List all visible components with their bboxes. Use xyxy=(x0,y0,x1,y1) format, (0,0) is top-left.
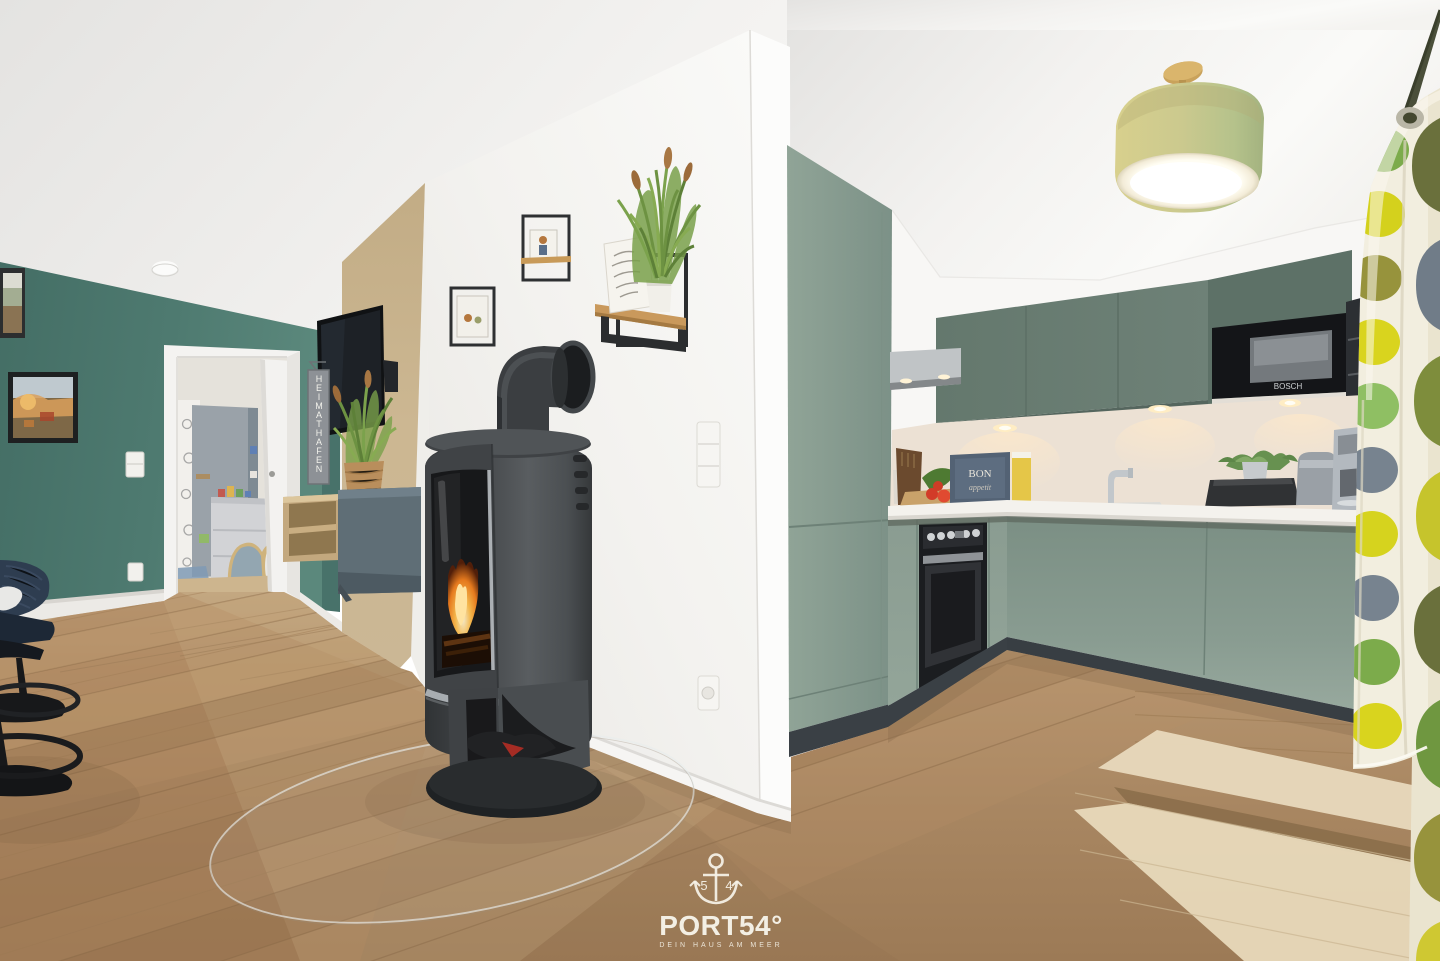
svg-text:BOSCH: BOSCH xyxy=(1274,382,1303,391)
svg-text:PORT54°: PORT54° xyxy=(659,910,783,941)
svg-text:DEIN HAUS AM MEER: DEIN HAUS AM MEER xyxy=(659,942,782,949)
svg-text:BON: BON xyxy=(968,468,991,480)
svg-text:HEIMATHAFEN: HEIMATHAFEN xyxy=(315,374,323,474)
svg-text:4: 4 xyxy=(725,878,732,893)
svg-text:5: 5 xyxy=(700,878,707,893)
svg-text:appetit: appetit xyxy=(969,483,992,492)
